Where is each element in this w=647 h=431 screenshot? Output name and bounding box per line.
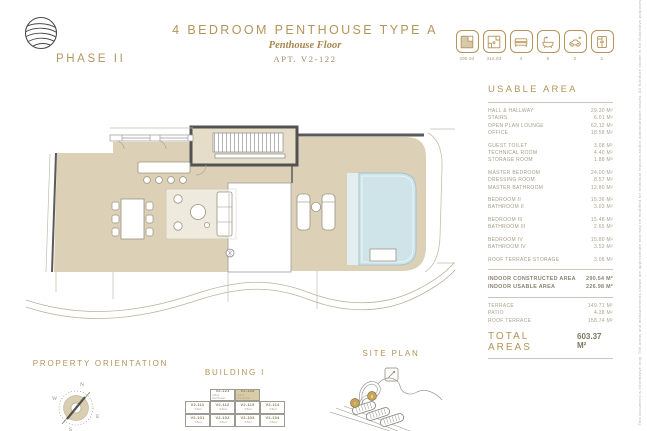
bar-stool bbox=[144, 177, 151, 184]
armchair bbox=[174, 195, 182, 203]
site-plan: I II bbox=[330, 360, 457, 431]
constructed-area-icon bbox=[456, 30, 479, 53]
chair bbox=[146, 215, 153, 223]
spec-icons-row: 290.54 312.83 4 bbox=[456, 30, 613, 61]
area-row: ROOF TERRACE STORAGE3.08 M² bbox=[488, 257, 613, 264]
usable-area-title: USABLE AREA bbox=[488, 84, 613, 95]
area-row: BEDROOM III15.48 M² bbox=[488, 217, 613, 224]
parking-icon bbox=[564, 30, 587, 53]
total-areas-label: TOTAL AREAS bbox=[488, 331, 577, 353]
area-row: OPEN PLAN LOUNGE62.12 M² bbox=[488, 123, 613, 130]
compass-n: N bbox=[80, 382, 84, 388]
bathrooms-icon bbox=[537, 30, 560, 53]
divider bbox=[488, 102, 613, 103]
orientation-title: PROPERTY ORIENTATION bbox=[18, 359, 183, 368]
constructed-area-spec: 290.54 bbox=[456, 30, 478, 61]
area-rows: HALL & HALLWAY29.30 M²STAIRS6.01 M²OPEN … bbox=[488, 108, 613, 264]
page-title: 4 BEDROOM PENTHOUSE TYPE A bbox=[150, 23, 460, 37]
coffee-table bbox=[191, 205, 206, 220]
building-unit-V2-102: V2-1023 Bed bbox=[210, 414, 235, 427]
sun-lounger bbox=[322, 194, 335, 230]
bar-counter bbox=[138, 162, 190, 173]
area-row: STORAGE ROOM1.88 M² bbox=[488, 157, 613, 164]
summary-row: INDOOR USABLE AREA226.98 M² bbox=[488, 283, 613, 291]
bar-stool bbox=[168, 177, 175, 184]
area-row: DRESSING ROOM8.57 M² bbox=[488, 177, 613, 184]
bedrooms-spec: 4 bbox=[510, 30, 532, 61]
area-row: BEDROOM IV15.80 M² bbox=[488, 237, 613, 244]
storage-icon bbox=[591, 30, 614, 53]
terrace-area-icon bbox=[483, 30, 506, 53]
open-void bbox=[228, 183, 291, 272]
floor-subtitle: Penthouse Floor bbox=[150, 40, 460, 51]
phase-label: PHASE II bbox=[56, 53, 125, 65]
chair bbox=[146, 202, 153, 210]
sun-lounger bbox=[297, 194, 310, 230]
terrace-row: PATIO4.38 M² bbox=[488, 310, 613, 317]
building-title: BUILDING I bbox=[185, 368, 285, 377]
area-row: HALL & HALLWAY29.30 M² bbox=[488, 108, 613, 115]
outline bbox=[46, 154, 50, 272]
floor-plan bbox=[10, 95, 455, 342]
round-table bbox=[311, 202, 320, 211]
compass: N W E S bbox=[46, 372, 106, 431]
building-unit-V2-113: V2-1133 Bed bbox=[235, 401, 260, 414]
divider bbox=[488, 269, 613, 270]
chair bbox=[112, 215, 119, 223]
phase-marker-label-1: I bbox=[354, 401, 355, 406]
summary-rows: INDOOR CONSTRUCTED AREA290.54 M²INDOOR U… bbox=[488, 275, 613, 292]
total-areas-row: TOTAL AREAS 603.37 M² bbox=[488, 331, 613, 353]
building-unit-V2-111: V2-1113 Bed bbox=[185, 401, 210, 414]
area-row: MASTER BEDROOM24.00 M² bbox=[488, 170, 613, 177]
terrace-row: TERRACE149.71 M² bbox=[488, 303, 613, 310]
building-unit-V2-112: V2-1123 Bed bbox=[210, 401, 235, 414]
storage-spec: 1 bbox=[591, 30, 613, 61]
phase-marker-label-2: II bbox=[371, 394, 374, 399]
disclaimer-text: This document is informative only. The a… bbox=[637, 10, 642, 426]
developer-logo bbox=[22, 14, 60, 52]
area-row: MASTER BATHROOM12.80 M² bbox=[488, 185, 613, 192]
chair bbox=[146, 228, 153, 236]
building-unit-V2-122: V2-1224 Bed Penthouse bbox=[235, 389, 260, 401]
side-table bbox=[204, 222, 209, 227]
area-row: BEDROOM II15.36 M² bbox=[488, 197, 613, 204]
bar-stool bbox=[156, 177, 163, 184]
area-row: OFFICE18.58 M² bbox=[488, 130, 613, 137]
area-row: STAIRS6.01 M² bbox=[488, 115, 613, 122]
area-row: TECHNICAL ROOM4.40 M² bbox=[488, 150, 613, 157]
terrace-area-spec: 312.83 bbox=[483, 30, 505, 61]
building-unit-V2-101: V2-1013 Bed bbox=[185, 414, 210, 427]
bar-stool bbox=[180, 177, 187, 184]
pool-equipment-box bbox=[370, 249, 396, 261]
bedrooms-icon bbox=[510, 30, 533, 53]
summary-row: INDOOR CONSTRUCTED AREA290.54 M² bbox=[488, 275, 613, 283]
road bbox=[378, 378, 442, 400]
compass-w: W bbox=[52, 396, 58, 402]
total-areas-value: 603.37 M² bbox=[577, 332, 613, 350]
area-row: BATHROOM IV3.52 M² bbox=[488, 244, 613, 251]
dining-table bbox=[121, 199, 144, 239]
area-row: BATHROOM III2.65 M² bbox=[488, 224, 613, 231]
building-grid: V2-1214 Bed PenthouseV2-1224 Bed Penthou… bbox=[185, 389, 285, 427]
title-block: 4 BEDROOM PENTHOUSE TYPE A Penthouse Flo… bbox=[150, 23, 460, 64]
stairs bbox=[213, 133, 283, 152]
apartment-number: APT. V2-122 bbox=[150, 54, 460, 64]
compass-s: S bbox=[69, 427, 72, 431]
divider bbox=[488, 358, 613, 359]
site-plan-title: SITE PLAN bbox=[348, 349, 434, 358]
terrace-rows: TERRACE149.71 M²PATIO4.38 M²ROOF TERRACE… bbox=[488, 303, 613, 325]
usable-area-panel: USABLE AREA HALL & HALLWAY29.30 M²STAIRS… bbox=[488, 84, 613, 364]
building-unit-V2-104: V2-1043 Bed bbox=[260, 414, 285, 427]
brochure-page: PHASE II 4 BEDROOM PENTHOUSE TYPE A Pent… bbox=[0, 0, 647, 431]
chair bbox=[112, 202, 119, 210]
parking-spec: 2 bbox=[564, 30, 586, 61]
pool-deck bbox=[347, 173, 359, 265]
terrace-row: ROOF TERRACE158.74 M² bbox=[488, 318, 613, 325]
building-unit-V2-121: V2-1214 Bed Penthouse bbox=[210, 389, 235, 401]
sofa bbox=[217, 192, 232, 236]
divider bbox=[488, 297, 613, 298]
compass-e: E bbox=[96, 414, 100, 420]
area-row: BATHROOM II3.03 M² bbox=[488, 204, 613, 211]
bathrooms-spec: 5 bbox=[537, 30, 559, 61]
building-unit-V2-103: V2-1033 Bed bbox=[235, 414, 260, 427]
area-row: GUEST TOILET3.08 M² bbox=[488, 143, 613, 150]
armchair bbox=[174, 222, 182, 230]
chair bbox=[112, 228, 119, 236]
building-unit-V2-114: V2-1143 Bed bbox=[260, 401, 285, 414]
patio-edge bbox=[425, 133, 442, 272]
